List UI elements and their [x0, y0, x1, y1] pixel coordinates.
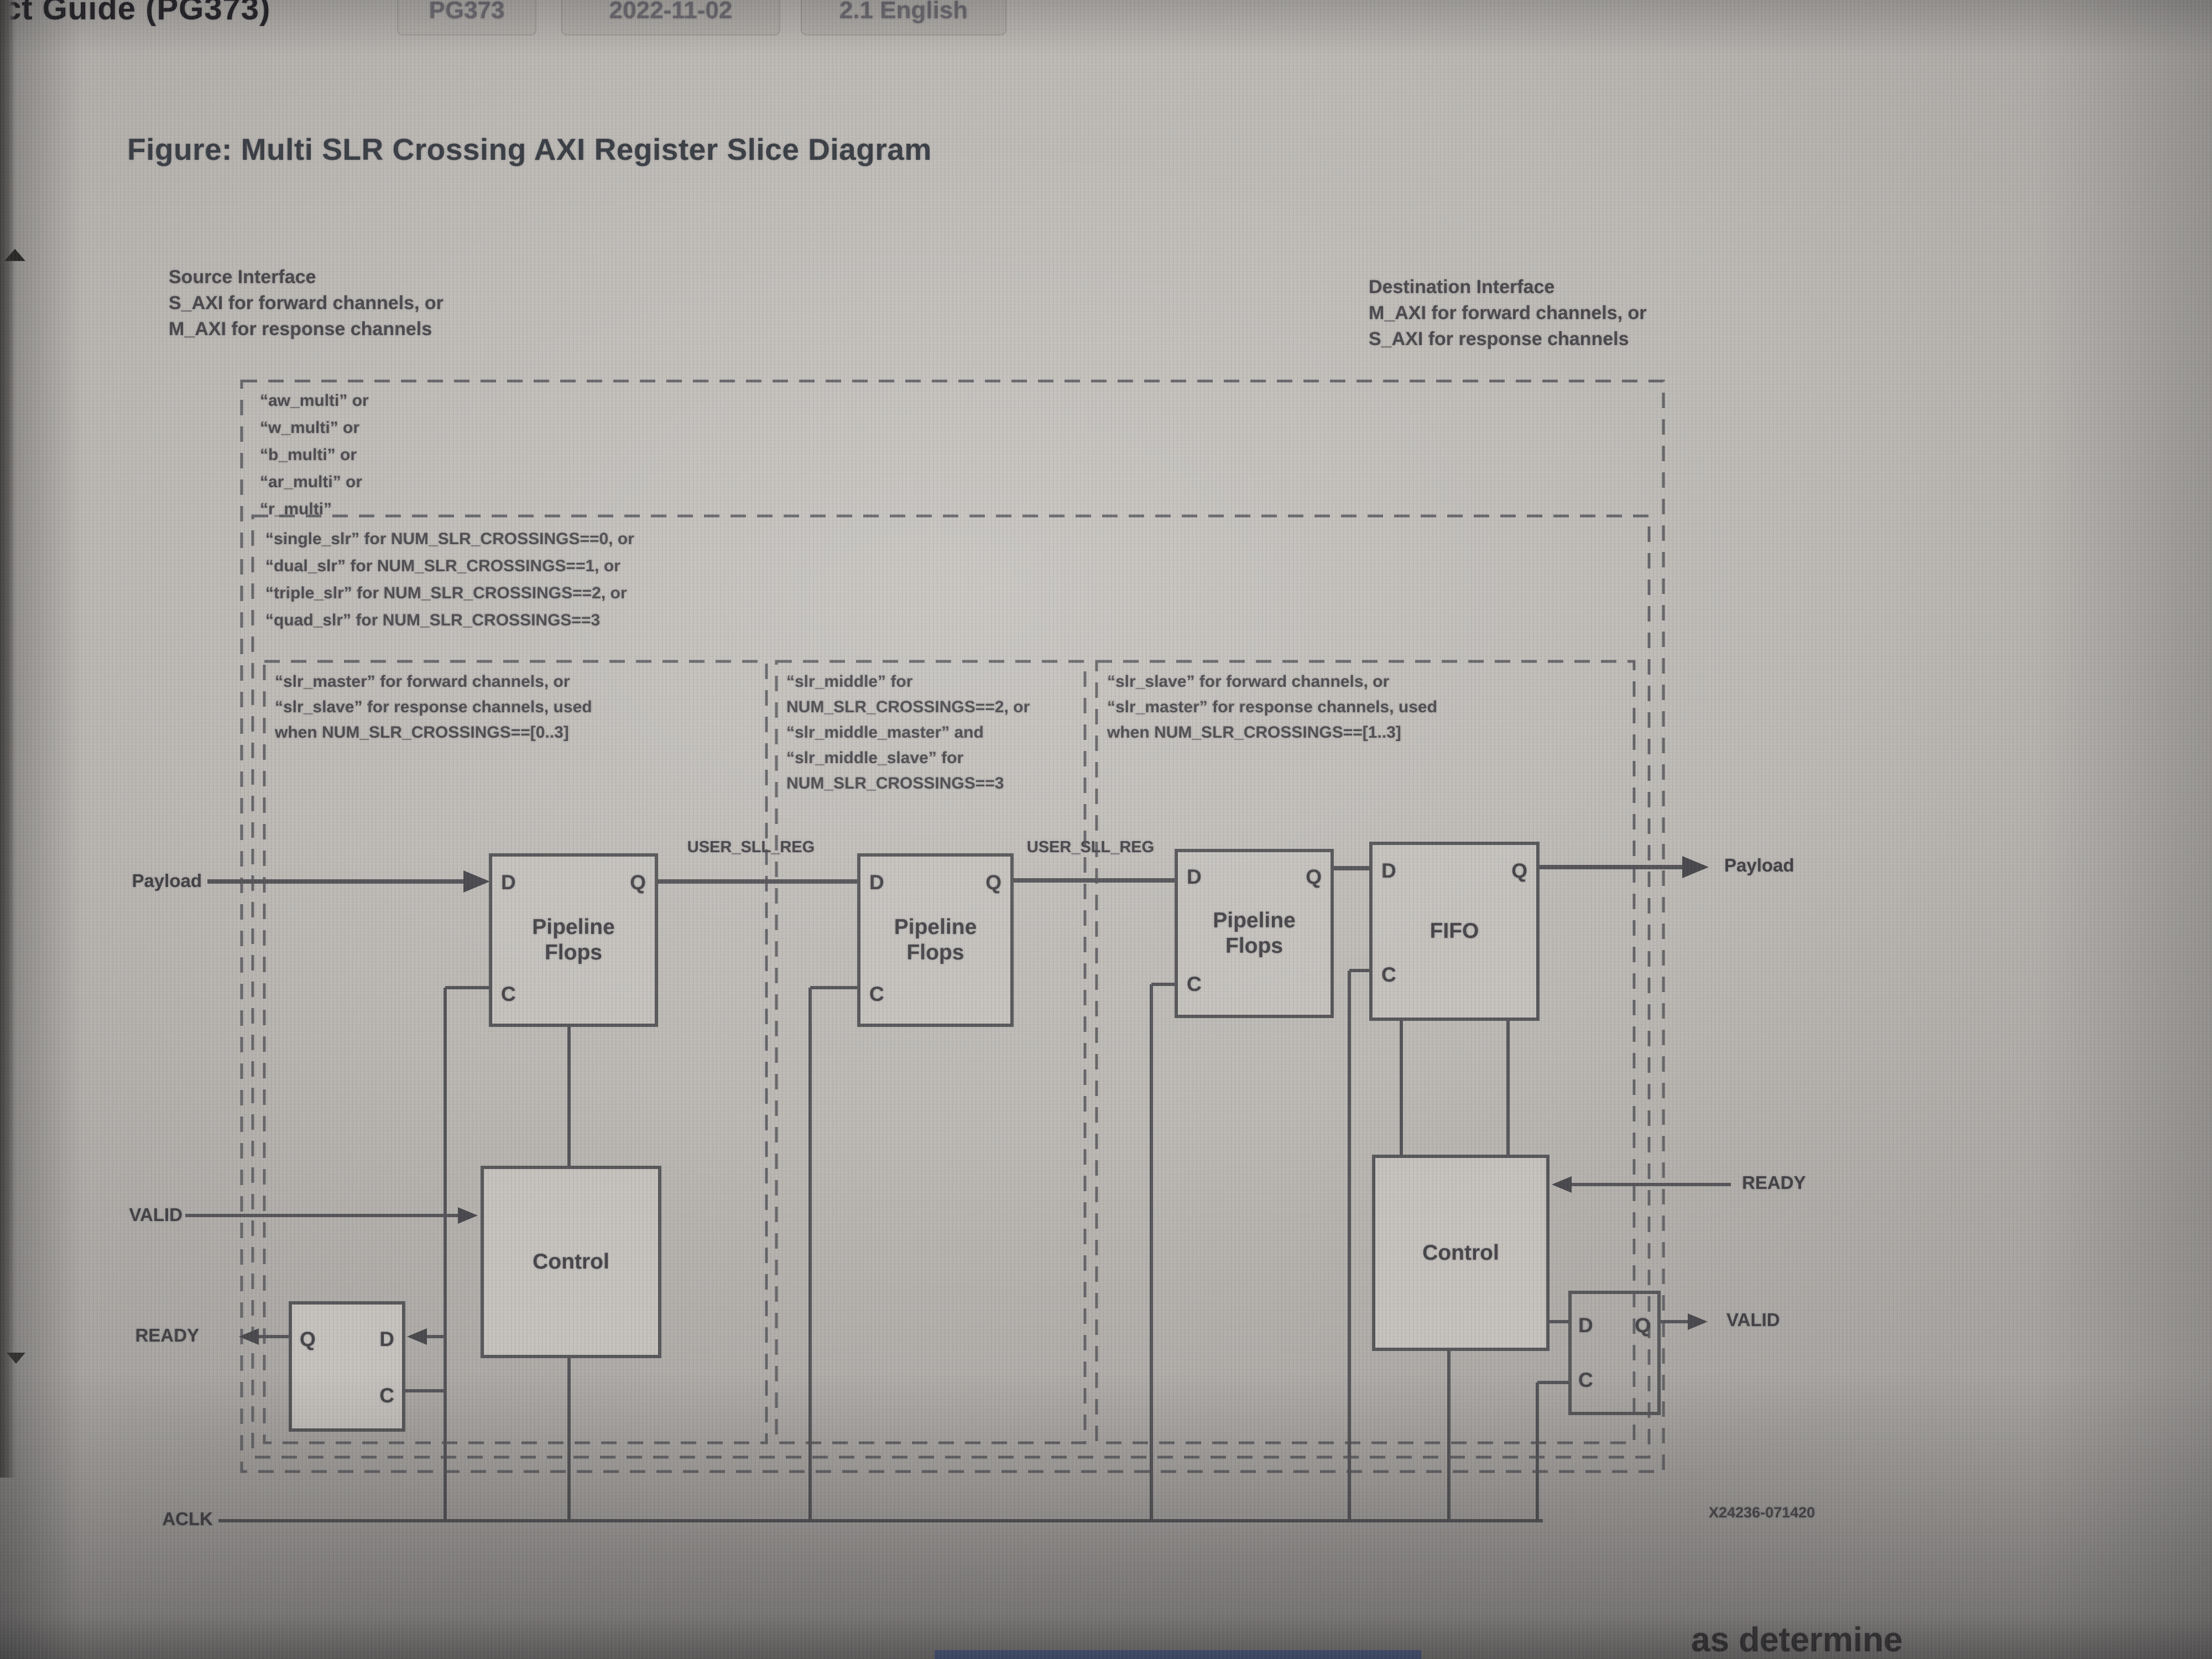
- annotation-line: “b_multi” or: [260, 441, 369, 468]
- annotation-line: “slr_master” for response channels, used: [1107, 695, 1437, 720]
- port-label-q: Q: [1635, 1314, 1651, 1337]
- control-1-block: Control: [481, 1166, 661, 1358]
- figure-number: X24236-071420: [1709, 1504, 1815, 1521]
- bottom-text-fragment: as determine: [1691, 1620, 1903, 1659]
- user-sll-reg-label-2: USER_SLL_REG: [1008, 838, 1173, 857]
- pipeline-flops-label: Pipeline: [532, 915, 615, 940]
- pipeline-flops-label: Pipeline: [894, 915, 977, 940]
- port-label-q: Q: [985, 871, 1001, 894]
- annotation-line: “triple_slr” for NUM_SLR_CROSSINGS==2, o…: [265, 580, 634, 607]
- annotation-line: “ar_multi” or: [260, 468, 369, 495]
- annotation-slr-middle-col: “slr_middle” for NUM_SLR_CROSSINGS==2, o…: [786, 669, 1030, 796]
- annotation-line: NUM_SLR_CROSSINGS==2, or: [786, 695, 1030, 720]
- port-label-c: C: [869, 983, 884, 1006]
- fifo-block: FIFO D Q C: [1369, 842, 1540, 1021]
- control-label: Control: [1422, 1240, 1499, 1266]
- annotation-line: “r_multi”: [260, 495, 369, 523]
- fifo-label: FIFO: [1430, 919, 1479, 944]
- annotation-line: “slr_slave” for response channels, used: [275, 695, 592, 720]
- ready-in-label: READY: [1742, 1172, 1806, 1193]
- port-label-c: C: [1187, 973, 1202, 996]
- port-label-c: C: [1578, 1369, 1593, 1392]
- port-label-c: C: [379, 1384, 394, 1407]
- port-label-c: C: [501, 983, 516, 1006]
- control-label: Control: [533, 1249, 609, 1275]
- port-label-d: D: [379, 1328, 394, 1351]
- payload-out-label: Payload: [1724, 855, 1794, 876]
- pipeline-flops-label: Pipeline: [1213, 908, 1296, 933]
- annotation-line: “slr_slave” for forward channels, or: [1107, 669, 1437, 695]
- annotation-line: “w_multi” or: [260, 414, 369, 441]
- port-label-q: Q: [630, 871, 646, 894]
- pipeline-flops-3-block: Pipeline Flops D Q C: [1175, 849, 1334, 1018]
- port-label-q: Q: [300, 1328, 316, 1351]
- scroll-up-icon[interactable]: [4, 249, 25, 261]
- annotation-line: “slr_middle_master” and: [786, 720, 1030, 745]
- monitor-photo: ct Guide (PG373) PG373 2022-11-02 2.1 En…: [0, 0, 2212, 1659]
- port-label-c: C: [1381, 963, 1396, 987]
- annotation-line: “slr_master” for forward channels, or: [275, 669, 592, 695]
- bottom-left-panel: [0, 1478, 63, 1659]
- port-label-d: D: [1381, 859, 1396, 883]
- port-label-d: D: [1187, 865, 1202, 889]
- pipeline-flops-label: Flops: [894, 940, 977, 966]
- control-2-block: Control: [1372, 1155, 1550, 1351]
- port-label-d: D: [501, 871, 516, 894]
- annotation-line: “single_slr” for NUM_SLR_CROSSINGS==0, o…: [265, 525, 634, 552]
- annotation-line: “slr_middle_slave” for: [786, 745, 1030, 771]
- annotation-slr-variants: “single_slr” for NUM_SLR_CROSSINGS==0, o…: [265, 525, 634, 634]
- dashed-box-slr-slave: [1097, 661, 1634, 1443]
- annotation-multi-channels: “aw_multi” or “w_multi” or “b_multi” or …: [260, 387, 369, 523]
- valid-in-label: VALID: [83, 1204, 182, 1225]
- ready-flop-left-block: Q D C: [289, 1301, 405, 1432]
- annotation-line: “dual_slr” for NUM_SLR_CROSSINGS==1, or: [265, 552, 634, 580]
- annotation-line: “slr_middle” for: [786, 669, 1030, 695]
- pipeline-flops-1-block: Pipeline Flops D Q C: [489, 853, 658, 1027]
- pipeline-flops-label: Flops: [532, 940, 615, 966]
- annotation-slr-slave-col: “slr_slave” for forward channels, or “sl…: [1107, 669, 1437, 745]
- annotation-line: “quad_slr” for NUM_SLR_CROSSINGS==3: [265, 607, 634, 634]
- annotation-line: when NUM_SLR_CROSSINGS==[1..3]: [1107, 720, 1437, 745]
- port-label-q: Q: [1306, 865, 1322, 889]
- payload-in-label: Payload: [88, 870, 202, 891]
- port-label-d: D: [869, 871, 884, 894]
- taskbar-sliver: [935, 1650, 1421, 1659]
- annotation-line: NUM_SLR_CROSSINGS==3: [786, 771, 1030, 796]
- pipeline-flops-2-block: Pipeline Flops D Q C: [857, 853, 1014, 1027]
- valid-out-label: VALID: [1726, 1310, 1780, 1331]
- pipeline-flops-label: Flops: [1213, 933, 1296, 959]
- valid-flop-right-block: D Q C: [1568, 1291, 1661, 1415]
- user-sll-reg-label-1: USER_SLL_REG: [668, 838, 834, 857]
- ready-out-label: READY: [88, 1325, 199, 1346]
- scroll-down-icon[interactable]: [7, 1353, 25, 1364]
- port-label-d: D: [1578, 1314, 1593, 1337]
- port-label-q: Q: [1511, 859, 1527, 883]
- annotation-slr-master-col: “slr_master” for forward channels, or “s…: [275, 669, 592, 745]
- aclk-label: ACLK: [100, 1509, 213, 1530]
- annotation-line: “aw_multi” or: [260, 387, 369, 414]
- annotation-line: when NUM_SLR_CROSSINGS==[0..3]: [275, 720, 592, 745]
